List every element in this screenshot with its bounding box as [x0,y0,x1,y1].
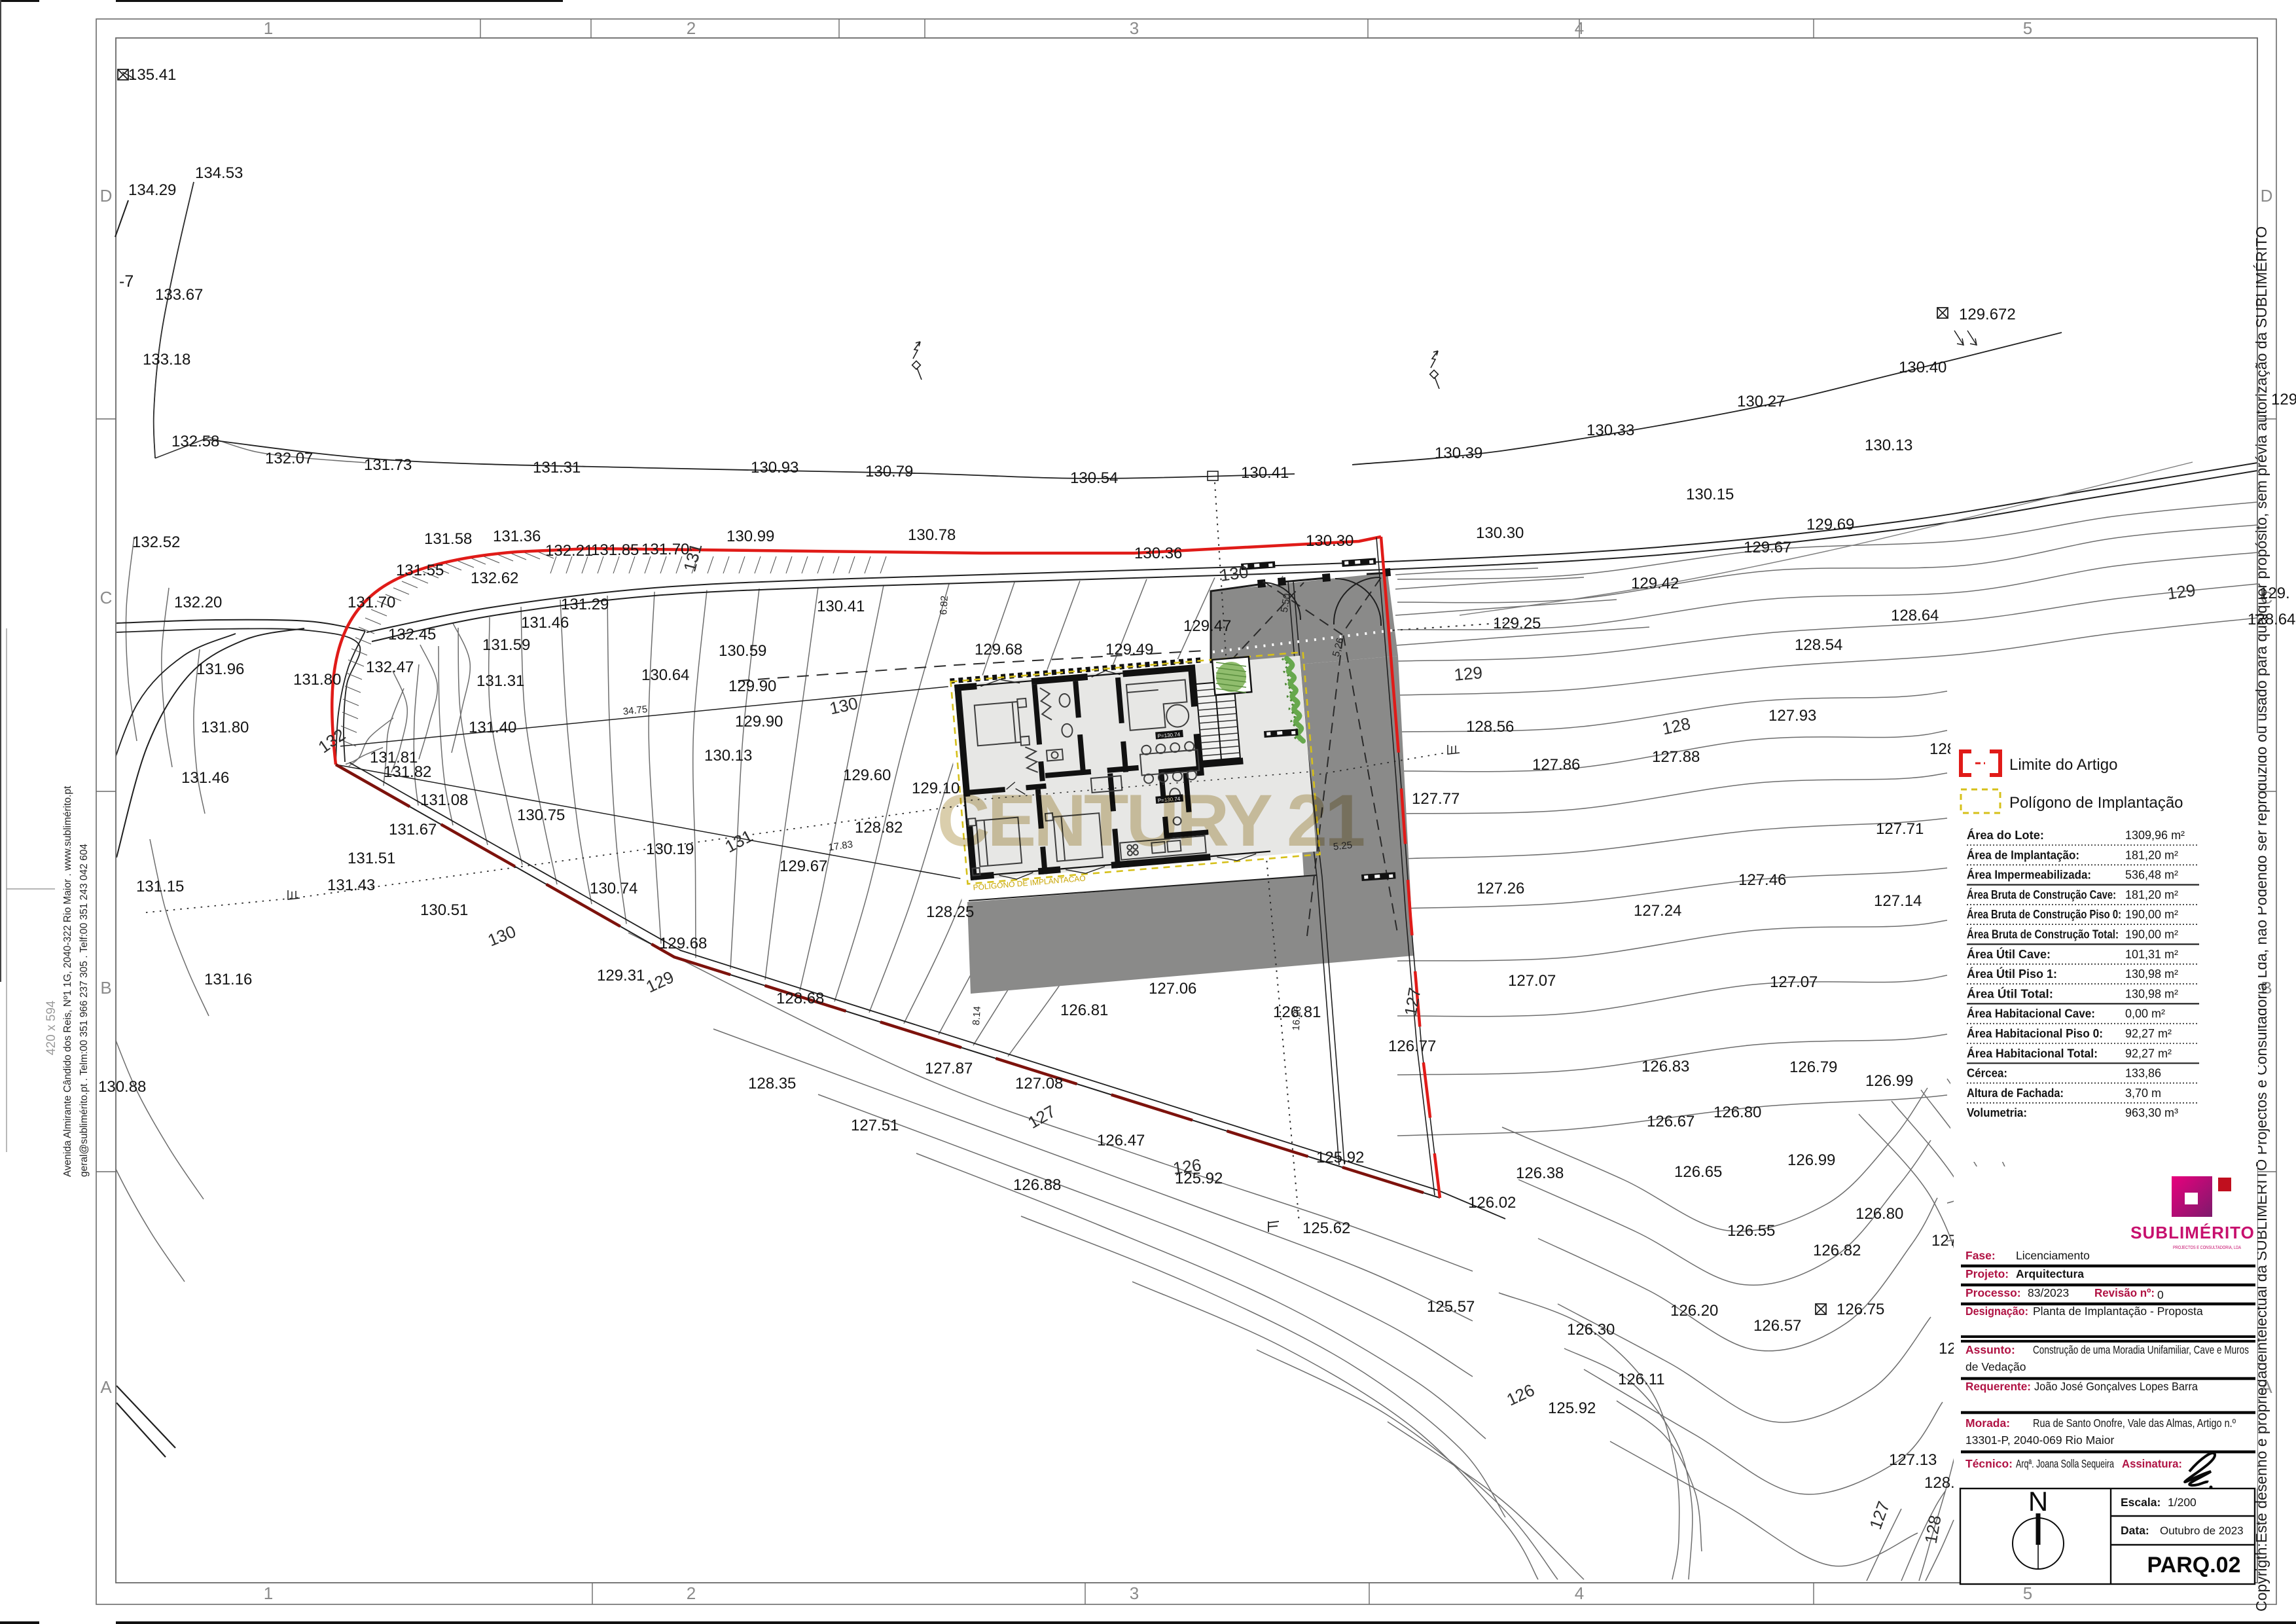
svg-text:131.43: 131.43 [327,876,375,894]
svg-text:Área Habitacional Piso 0:: Área Habitacional Piso 0: [1967,1026,2103,1040]
svg-text:132.21: 132.21 [545,542,593,560]
svg-text:128.25: 128.25 [926,903,974,921]
svg-text:Altura de Fachada:: Altura de Fachada: [1967,1087,2064,1100]
svg-text:127.07: 127.07 [1770,973,1818,991]
svg-text:130.64: 130.64 [641,666,689,684]
svg-text:126.47: 126.47 [1097,1132,1145,1149]
svg-text:181,20 m²: 181,20 m² [2125,848,2178,861]
svg-text:128.56: 128.56 [1466,718,1514,736]
svg-text:181,20 m²: 181,20 m² [2125,888,2178,901]
svg-text:127.14: 127.14 [1874,892,1922,910]
svg-text:3: 3 [1130,1583,1139,1603]
svg-text:129.60: 129.60 [843,767,891,784]
svg-text:92,27 m²: 92,27 m² [2125,1027,2172,1040]
svg-text:126.82: 126.82 [1813,1242,1861,1259]
svg-text:129.25: 129.25 [1493,615,1541,632]
svg-text:Escala:: Escala: [2121,1496,2161,1509]
svg-text:Revisão nº:: Revisão nº: [2094,1286,2155,1299]
svg-text:131.15: 131.15 [136,878,184,895]
svg-text:PARQ.02: PARQ.02 [2147,1553,2241,1578]
svg-text:Limite do Artigo: Limite do Artigo [2009,756,2117,774]
svg-text:126.02: 126.02 [1468,1194,1516,1212]
svg-text:132.20: 132.20 [174,594,222,611]
svg-text:101,31 m²: 101,31 m² [2125,948,2178,961]
svg-text:126.67: 126.67 [1647,1113,1695,1130]
svg-text:Arqª. Joana Solla Sequeira: Arqª. Joana Solla Sequeira [2016,1457,2114,1470]
svg-text:92,27 m²: 92,27 m² [2125,1047,2172,1060]
svg-text:130.59: 130.59 [719,642,766,660]
svg-text:João José Gonçalves Lopes Barr: João José Gonçalves Lopes Barra [2034,1380,2198,1393]
svg-text:83/2023: 83/2023 [2028,1286,2069,1299]
svg-text:Fase:: Fase: [1965,1249,1996,1262]
svg-text:129.2: 129.2 [2271,391,2296,408]
svg-text:131.31: 131.31 [533,459,581,477]
svg-text:129.90: 129.90 [735,713,783,731]
svg-text:126.81: 126.81 [1060,1001,1108,1019]
svg-text:126.55: 126.55 [1727,1222,1775,1240]
svg-text:127.86: 127.86 [1532,756,1580,774]
svg-text:Requerente:: Requerente: [1965,1380,2031,1393]
svg-text:130.19: 130.19 [646,840,694,858]
svg-text:134.29: 134.29 [128,181,176,199]
svg-text:126.80: 126.80 [1713,1104,1761,1121]
svg-text:131.31: 131.31 [476,672,524,690]
svg-text:129.68: 129.68 [659,935,707,952]
svg-text:129.47: 129.47 [1183,617,1231,635]
svg-text:130.75: 130.75 [517,806,565,824]
svg-text:0: 0 [2157,1288,2164,1301]
svg-text:128.54: 128.54 [1795,636,1842,654]
svg-text:130.36: 130.36 [1134,545,1182,562]
svg-text:132.45: 132.45 [388,626,436,643]
svg-text:1309,96 m²: 1309,96 m² [2125,829,2185,842]
svg-text:Polígono de Implantação: Polígono de Implantação [2009,794,2183,812]
svg-text:125.92: 125.92 [1548,1399,1596,1417]
svg-text:133.67: 133.67 [155,286,203,304]
svg-text:Área Bruta de Construção Total: Área Bruta de Construção Total: [1967,928,2119,941]
svg-text:126.79: 126.79 [1789,1058,1837,1076]
svg-text:128.82: 128.82 [855,819,903,837]
svg-text:131.82: 131.82 [384,763,431,781]
svg-text:127.26: 127.26 [1477,880,1524,897]
svg-text:126.11: 126.11 [1618,1371,1665,1388]
svg-text:1: 1 [264,18,273,38]
svg-text:128.64: 128.64 [2248,611,2295,628]
svg-text:0,00 m²: 0,00 m² [2125,1007,2165,1020]
svg-text:132.58: 132.58 [171,433,219,450]
svg-text:3,70 m: 3,70 m [2125,1087,2161,1100]
svg-text:131.67: 131.67 [389,821,437,839]
svg-text:130.15: 130.15 [1686,486,1734,503]
svg-text:N: N [2028,1486,2048,1517]
svg-text:133,86: 133,86 [2125,1067,2161,1080]
svg-text:128.64: 128.64 [1891,607,1939,624]
svg-text:130.99: 130.99 [726,528,774,545]
svg-text:127.88: 127.88 [1652,748,1700,766]
svg-text:127.08: 127.08 [1015,1075,1063,1092]
svg-text:130.41: 130.41 [817,598,865,615]
svg-text:132.47: 132.47 [366,659,414,676]
svg-text:130.88: 130.88 [98,1078,146,1096]
svg-text:128.35: 128.35 [748,1075,796,1092]
svg-text:130: 130 [1219,562,1249,585]
svg-text:131.36: 131.36 [493,528,541,545]
svg-text:Técnico:: Técnico: [1965,1457,2013,1470]
svg-text:126.38: 126.38 [1516,1164,1564,1182]
svg-text:Área de Implantação:: Área de Implantação: [1967,848,2079,861]
svg-text:130,98 m²: 130,98 m² [2125,967,2178,981]
svg-text:131.80: 131.80 [293,671,341,689]
svg-text:1: 1 [264,1583,273,1603]
svg-text:125.57: 125.57 [1427,1298,1475,1316]
svg-text:125,92: 125,92 [1316,1149,1364,1166]
svg-text:130.40: 130.40 [1899,359,1946,376]
svg-text:129.10: 129.10 [912,780,960,797]
svg-text:131.55: 131.55 [396,562,444,579]
svg-text:127.07: 127.07 [1508,972,1556,990]
svg-text:Área Impermeabilizada:: Área Impermeabilizada: [1967,868,2091,882]
svg-text:131.16: 131.16 [204,971,252,988]
svg-text:126.80: 126.80 [1856,1205,1903,1223]
svg-text:Área Útil Total:: Área Útil Total: [1967,986,2053,1000]
svg-text:131.08: 131.08 [420,791,468,809]
svg-text:Processo:: Processo: [1965,1286,2021,1299]
svg-text:B: B [100,978,111,998]
svg-text:132.07: 132.07 [265,450,313,467]
svg-text:420 x 594: 420 x 594 [45,1000,58,1055]
svg-text:126.20: 126.20 [1670,1302,1718,1320]
svg-text:2: 2 [687,1583,696,1603]
svg-text:126.83: 126.83 [1641,1058,1689,1075]
svg-text:129: 129 [2166,580,2197,604]
svg-text:132.62: 132.62 [471,569,518,587]
svg-text:129.68: 129.68 [975,641,1022,659]
svg-text:130.13: 130.13 [704,747,752,765]
svg-text:Área Habitacional Cave:: Área Habitacional Cave: [1967,1007,2095,1020]
svg-text:Área Bruta de Construção Cave:: Área Bruta de Construção Cave: [1967,888,2116,901]
svg-text:130.33: 130.33 [1587,422,1634,439]
svg-text:131.80: 131.80 [201,719,249,736]
svg-text:126.57: 126.57 [1753,1317,1801,1335]
svg-text:4: 4 [1575,1583,1584,1603]
svg-text:126.77: 126.77 [1388,1038,1436,1055]
svg-text:127.93: 127.93 [1768,707,1816,725]
svg-text:Volumetria:: Volumetria: [1967,1106,2027,1119]
svg-text:130.54: 130.54 [1070,469,1118,487]
svg-text:129.67: 129.67 [780,857,827,875]
svg-text:C: C [100,588,113,607]
svg-text:130.41: 130.41 [1241,464,1289,482]
svg-text:16.26: 16.26 [1291,1005,1304,1031]
svg-text:SUBLIMÉRITO: SUBLIMÉRITO [2130,1223,2255,1242]
svg-text:1/200: 1/200 [2168,1496,2197,1509]
svg-text:5.25: 5.25 [1333,840,1353,853]
svg-text:Arquitectura: Arquitectura [2016,1267,2084,1280]
svg-text:126.75: 126.75 [1837,1301,1884,1318]
svg-text:134.53: 134.53 [195,164,243,182]
svg-text:4: 4 [1575,18,1584,38]
svg-text:D: D [2261,186,2273,206]
svg-text:127.46: 127.46 [1738,871,1786,889]
svg-text:Morada:: Morada: [1965,1416,2010,1430]
svg-text:PROJECTOS E CONSULTADORIA, LDA: PROJECTOS E CONSULTADORIA, LDA [2173,1246,2241,1250]
svg-text:-7: -7 [119,272,134,291]
svg-text:A: A [100,1377,112,1397]
svg-text:Planta de Implantação - Propos: Planta de Implantação - Proposta [2033,1305,2203,1318]
svg-text:127.24: 127.24 [1634,902,1681,920]
svg-text:130.78: 130.78 [908,526,956,544]
svg-text:127.13: 127.13 [1889,1451,1937,1469]
svg-text:Assunto:: Assunto: [1965,1343,2015,1356]
svg-text:129.42: 129.42 [1631,575,1679,592]
svg-text:Assinatura:: Assinatura: [2122,1457,2182,1470]
svg-text:126.99: 126.99 [1865,1072,1913,1090]
svg-text:Cércea:: Cércea: [1967,1067,2007,1080]
svg-text:127.06: 127.06 [1149,980,1196,998]
svg-text:133.18: 133.18 [143,351,190,369]
svg-text:127.71: 127.71 [1876,820,1924,838]
svg-text:129.31: 129.31 [597,967,645,984]
svg-text:130.74: 130.74 [590,880,637,897]
svg-text:13301-P, 2040-069 Rio Maior: 13301-P, 2040-069 Rio Maior [1965,1434,2115,1447]
svg-text:129.69: 129.69 [1806,516,1854,533]
svg-text:130.13: 130.13 [1865,437,1912,454]
svg-text:Área Bruta de Construção Piso: Área Bruta de Construção Piso 0: [1967,907,2121,921]
svg-text:131.46: 131.46 [181,769,229,787]
svg-text:131.73: 131.73 [364,456,412,474]
svg-text:190,00 m²: 190,00 m² [2125,908,2178,921]
svg-text:6.82: 6.82 [938,596,950,615]
svg-text:D: D [100,186,113,206]
svg-text:135.41: 135.41 [128,66,176,84]
svg-text:Área Útil Cave:: Área Útil Cave: [1967,947,2051,961]
svg-text:126.99: 126.99 [1787,1151,1835,1169]
svg-text:Área Habitacional Total:: Área Habitacional Total: [1967,1046,2098,1060]
svg-text:131.58: 131.58 [424,530,472,548]
svg-text:geral@sublimérito.pt . Telm:00: geral@sublimérito.pt . Telm:00 351 966 2… [79,844,90,1177]
svg-text:Licenciamento: Licenciamento [2016,1249,2090,1262]
svg-text:131.59: 131.59 [482,636,530,654]
svg-text:130.79: 130.79 [865,463,913,480]
svg-text:129.49: 129.49 [1105,641,1153,659]
svg-text:Área do Lote:: Área do Lote: [1967,828,2044,842]
svg-text:130.93: 130.93 [751,459,798,477]
svg-text:190,00 m²: 190,00 m² [2125,928,2178,941]
svg-text:Designação:: Designação: [1965,1305,2028,1318]
svg-text:2: 2 [687,18,696,38]
svg-text:Avenida Almirante Cândido dos: Avenida Almirante Cândido dos Reis, Nº1 … [62,785,73,1177]
svg-text:8.14: 8.14 [971,1006,983,1026]
svg-text:130.30: 130.30 [1306,532,1354,550]
svg-text:130.51: 130.51 [420,901,468,919]
svg-text:126: 126 [1172,1155,1202,1178]
svg-text:126.88: 126.88 [1013,1176,1061,1194]
svg-text:130.39: 130.39 [1435,444,1482,462]
svg-text:132.52: 132.52 [132,533,180,551]
svg-text:129.672: 129.672 [1959,306,2016,323]
svg-text:Outubro de 2023: Outubro de 2023 [2160,1525,2244,1537]
svg-text:125.62: 125.62 [1302,1219,1350,1237]
svg-text:129.: 129. [2259,585,2290,602]
svg-text:Data:: Data: [2121,1524,2149,1537]
svg-text:Rua de Santo Onofre, Vale das: Rua de Santo Onofre, Vale das Almas, Art… [2033,1416,2236,1430]
svg-text:126.65: 126.65 [1674,1163,1722,1181]
svg-text:129.67: 129.67 [1744,539,1791,556]
svg-text:Construção de uma Moradia Unif: Construção de uma Moradia Unifamiliar, C… [2033,1343,2249,1356]
svg-text:Área Útil Piso 1:: Área Útil Piso 1: [1967,967,2057,981]
svg-text:129: 129 [1453,662,1483,685]
svg-text:130.30: 130.30 [1476,524,1524,542]
svg-text:131.51: 131.51 [348,850,395,867]
svg-text:129.90: 129.90 [728,677,776,695]
svg-text:Projeto:: Projeto: [1965,1267,2009,1280]
svg-text:5: 5 [2023,1583,2032,1603]
svg-text:131.70: 131.70 [348,594,395,611]
svg-text:130.27: 130.27 [1737,393,1785,410]
svg-text:536,48 m²: 536,48 m² [2125,869,2178,882]
svg-text:128.68: 128.68 [776,990,824,1007]
svg-text:131.70: 131.70 [641,541,689,558]
svg-text:131.46: 131.46 [521,614,569,632]
svg-text:130,98 m²: 130,98 m² [2125,987,2178,1000]
svg-text:126.30: 126.30 [1567,1321,1615,1339]
svg-text:131.96: 131.96 [196,660,244,678]
svg-text:127.87: 127.87 [925,1060,973,1077]
svg-text:127.77: 127.77 [1412,790,1460,808]
svg-text:131.85: 131.85 [591,541,639,559]
svg-text:131.29: 131.29 [561,596,609,613]
svg-text:127.51: 127.51 [851,1117,899,1134]
svg-text:CENTURY 21: CENTURY 21 [937,780,1365,861]
svg-text:5: 5 [2023,18,2032,38]
svg-text:3: 3 [1130,18,1139,38]
svg-text:131.40: 131.40 [469,719,516,736]
svg-text:963,30 m³: 963,30 m³ [2125,1106,2178,1119]
svg-text:de Vedação: de Vedação [1965,1360,2026,1373]
